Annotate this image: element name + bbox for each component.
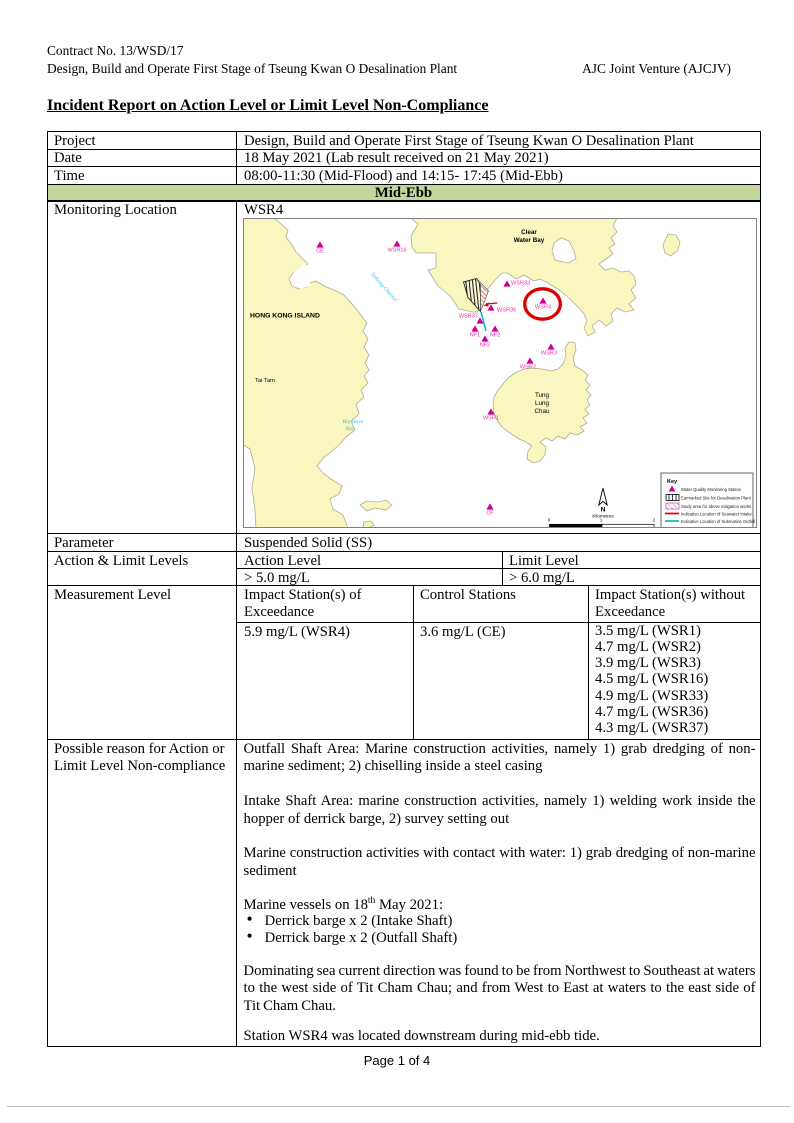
svg-text:WSR4: WSR4	[535, 305, 551, 311]
svg-text:WSR36: WSR36	[497, 308, 516, 314]
svg-text:WSR37: WSR37	[459, 314, 478, 320]
svg-text:Lung: Lung	[535, 400, 550, 407]
svg-text:WSR2: WSR2	[520, 365, 536, 371]
svg-text:CF: CF	[486, 511, 494, 517]
svg-text:WSR1: WSR1	[483, 416, 499, 422]
svg-text:Clear: Clear	[521, 229, 537, 236]
svg-text:WSR3: WSR3	[541, 351, 557, 357]
svg-text:Tai Tam: Tai Tam	[255, 378, 275, 384]
svg-text:WSR16: WSR16	[387, 248, 406, 254]
svg-text:Big Wave: Big Wave	[343, 419, 364, 425]
svg-text:WSR33: WSR33	[511, 281, 530, 287]
svg-text:Study area for above mitigatio: Study area for above mitigation works	[681, 504, 751, 509]
svg-text:NF2: NF2	[490, 333, 501, 339]
svg-text:Chau: Chau	[534, 408, 550, 415]
svg-text:HONG KONG ISLAND: HONG KONG ISLAND	[250, 313, 320, 320]
svg-text:NF1: NF1	[470, 333, 481, 339]
svg-text:Kilometres: Kilometres	[592, 514, 614, 519]
svg-text:NF3: NF3	[480, 343, 491, 349]
svg-text:Tung: Tung	[535, 392, 550, 399]
svg-text:CE: CE	[316, 249, 324, 255]
svg-text:N: N	[601, 507, 606, 514]
svg-text:Water Quality Monitoring Stati: Water Quality Monitoring Station	[681, 487, 742, 492]
svg-text:Earmarked Site for Desalinatio: Earmarked Site for Desalination Plant	[681, 496, 752, 501]
svg-text:Key: Key	[667, 479, 678, 485]
svg-text:Bay: Bay	[346, 426, 355, 432]
svg-text:Water Bay: Water Bay	[514, 237, 545, 244]
svg-text:Indicative Location of Seawate: Indicative Location of Seawater Intake	[681, 512, 752, 517]
svg-text:Indicative Location of Submari: Indicative Location of Submarine Outfall	[681, 519, 755, 524]
